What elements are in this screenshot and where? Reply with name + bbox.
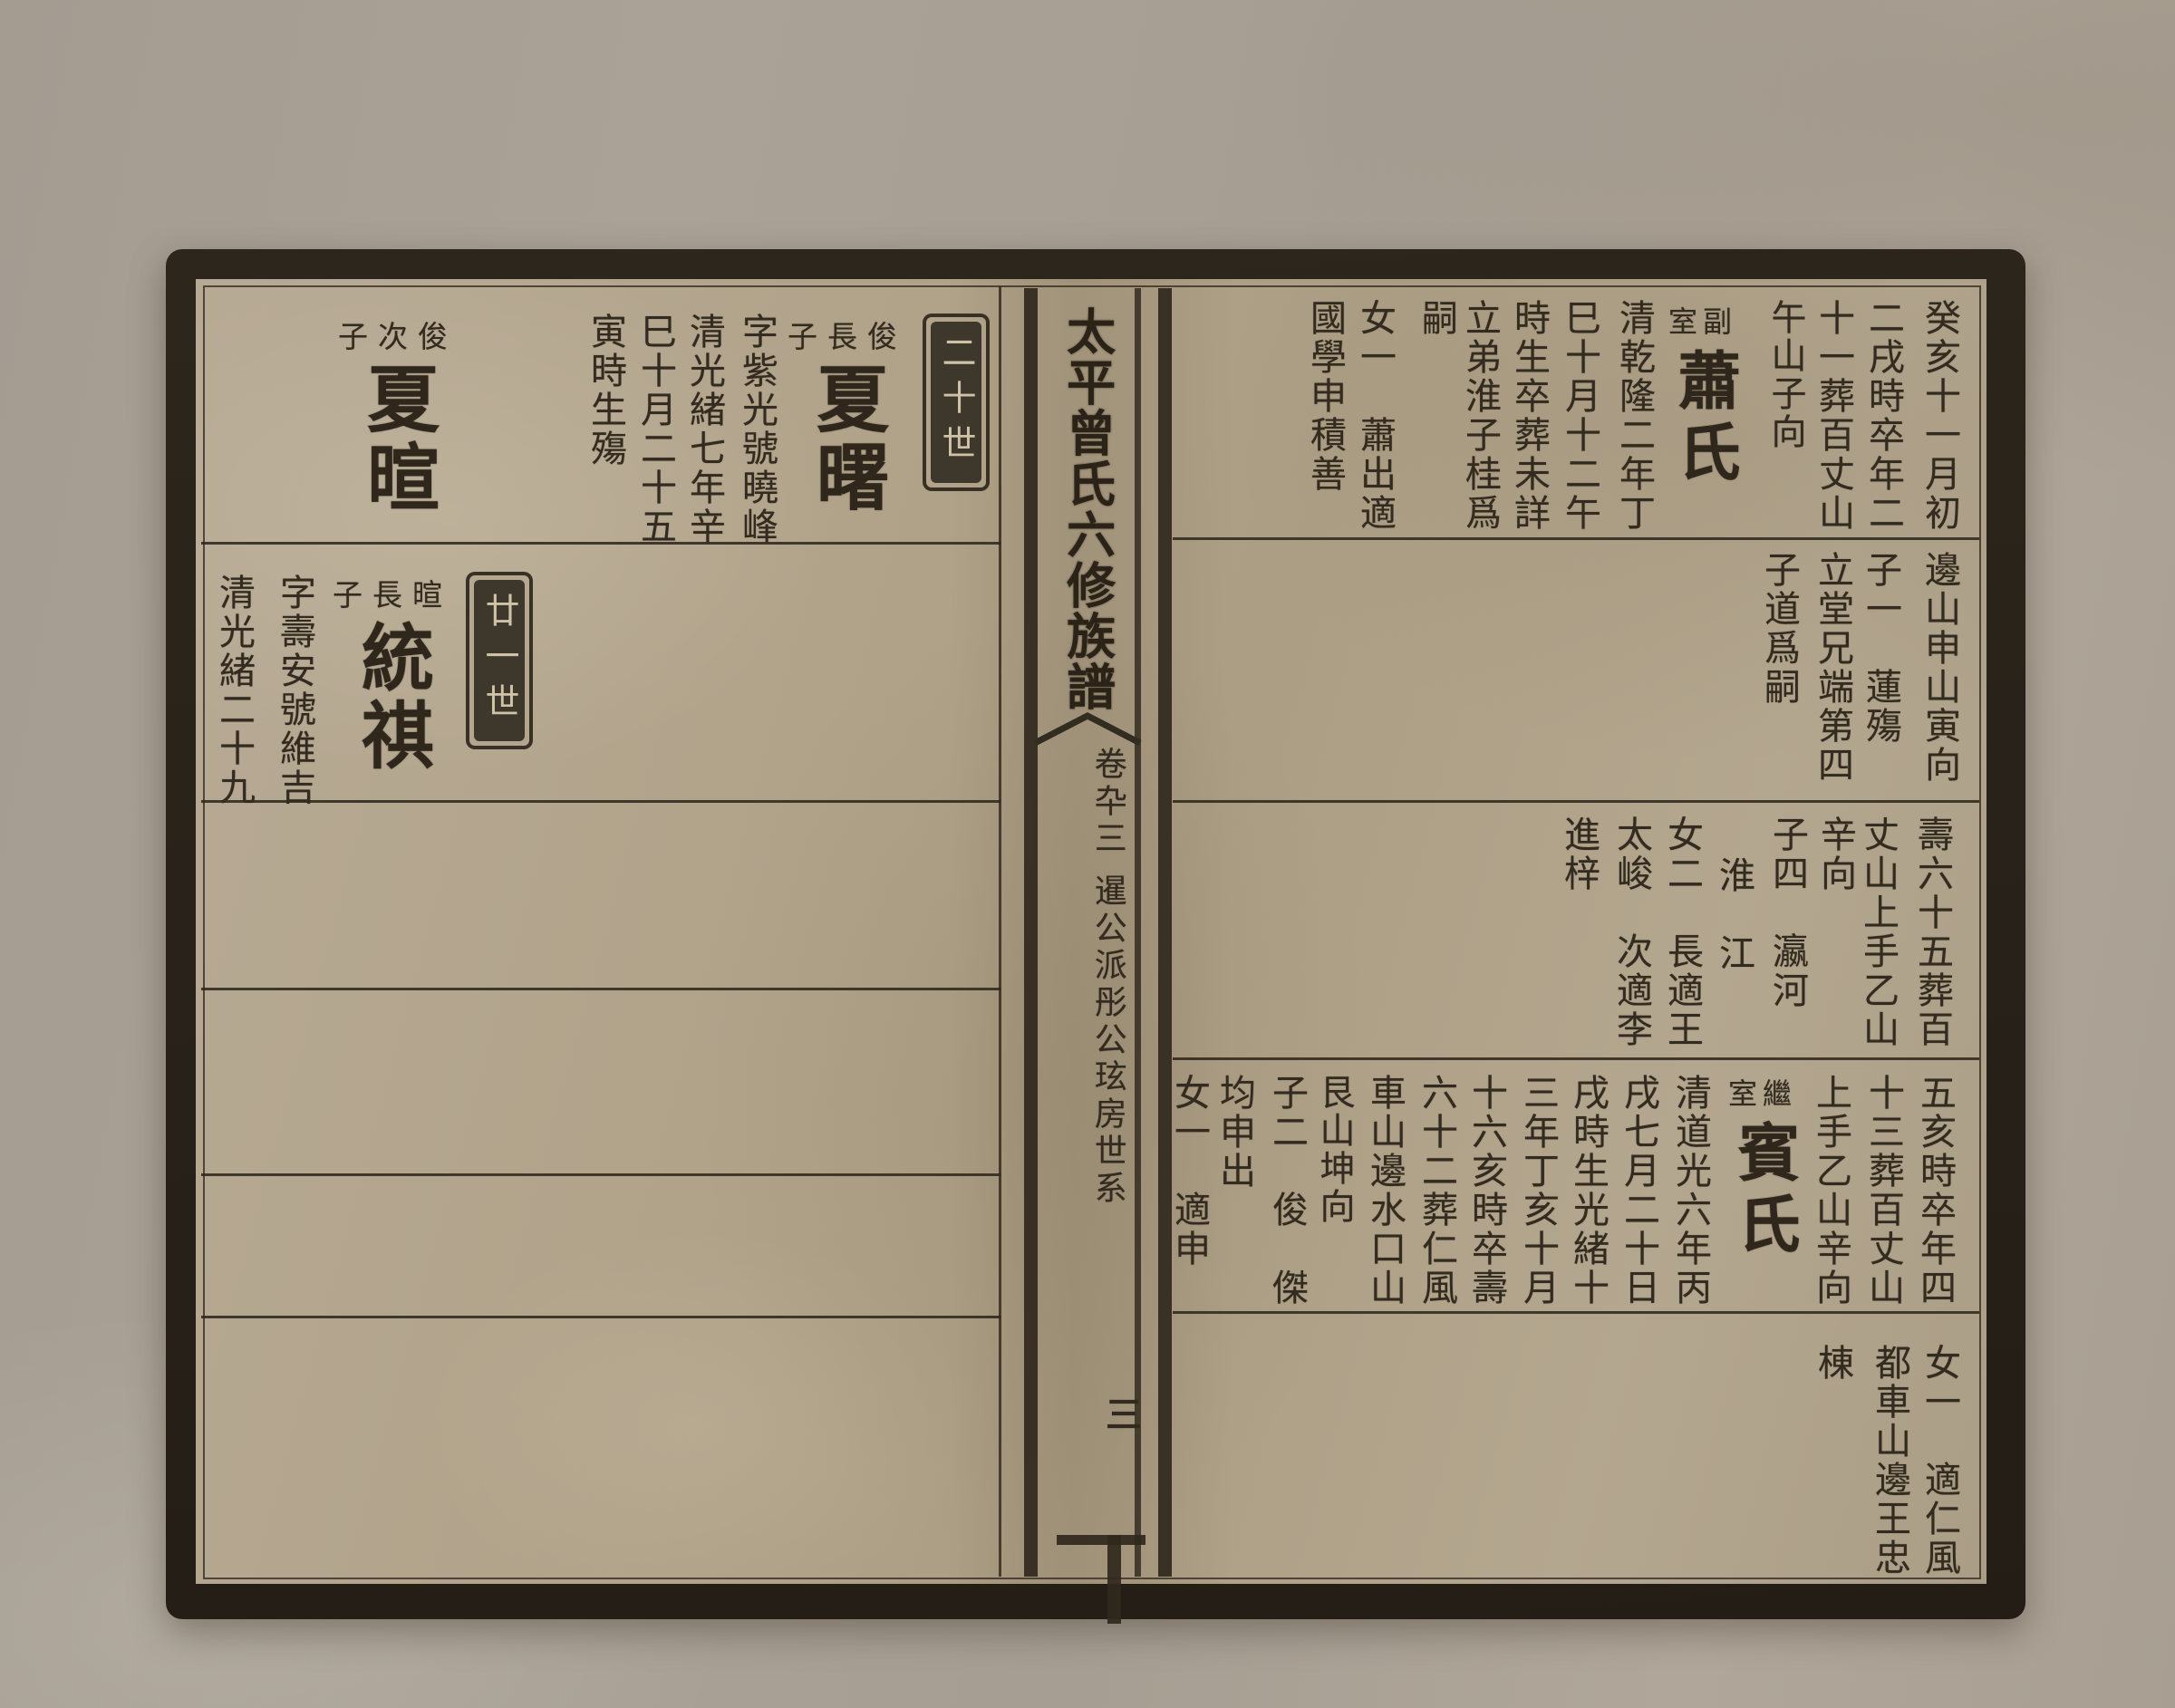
right-row-divider-4 — [1173, 1311, 1979, 1314]
left-r2-col-guangxu29: 清光緒二十九 — [215, 574, 253, 807]
right-r1-col-heir-setup: 立弟淮子桂爲 — [1461, 299, 1499, 533]
right-r4-col-death: 五亥時卒年四 — [1916, 1074, 1954, 1308]
right-r3-col-age: 壽六十五葬百 — [1913, 815, 1951, 1049]
left-r1-col-date: 巳十月二十五 — [636, 313, 674, 546]
right-page-left-bar — [1158, 288, 1172, 1577]
right-r1-col-orientation: 午山子向 — [1766, 299, 1803, 451]
fold-mark-vertical — [1107, 1535, 1121, 1624]
right-r1-col-deathage: 二戌時卒年二 — [1864, 299, 1902, 533]
person-relation: 俊次子 — [338, 313, 458, 356]
right-r2-col-adopt2: 子道爲嗣 — [1760, 551, 1798, 707]
spine-left-bar — [1024, 288, 1038, 1577]
right-r4-col-guangxu: 戌時生光緒十 — [1569, 1074, 1607, 1308]
left-r2-col-courtesyname: 字壽安號維吉 — [275, 574, 314, 807]
page-number: 三 — [1094, 1395, 1146, 1432]
right-r3-col-daughters: 女二 長適王 — [1663, 815, 1701, 1049]
scanned-genealogy-spread: 太平曾氏六修族譜 卷卆三 暹公派彤公玹房世系 三 癸亥十一月初 二戌時卒年二 十… — [0, 0, 2175, 1708]
right-r1-col-unknown-burial: 時生卒葬未詳 — [1510, 299, 1548, 533]
person-entry-xiaxuan: 俊次子 夏暄 — [343, 313, 453, 517]
spouse-entry-bin: 繼室 賓氏 — [1727, 1071, 1798, 1263]
left-row-divider-3 — [201, 988, 1000, 990]
right-r2-col-son: 子一 蓮殤 — [1861, 551, 1899, 746]
generation-box-20-label: 二十世 — [931, 322, 981, 483]
right-r4-col-gravesite: 車山邊水口山 — [1366, 1074, 1404, 1308]
right-r3-col-daughters2: 太峻 次適李 — [1612, 815, 1650, 1049]
right-r3-col-son-jinzi: 進梓 — [1560, 815, 1598, 893]
right-r1-col-date: 巳十月十二午 — [1561, 299, 1599, 533]
person-relation: 暄長子 — [333, 571, 452, 614]
spouse-label: 繼室 — [1728, 1071, 1797, 1113]
person-name: 統祺 — [354, 620, 430, 776]
person-relation: 俊長子 — [788, 313, 907, 356]
right-row-divider-3 — [1173, 1057, 1979, 1060]
spine-right-rule — [1135, 288, 1141, 1577]
left-row-divider-5 — [201, 1316, 1000, 1318]
person-name: 夏曙 — [809, 362, 885, 517]
branch-lineage-label: 暹公派彤公玹房世系 — [1090, 873, 1125, 1208]
right-r4-col-age62: 六十二葬仁風 — [1417, 1074, 1455, 1308]
person-name: 夏暄 — [360, 362, 436, 517]
left-row-divider-4 — [201, 1173, 1000, 1176]
left-r1-col-guangxu7: 清光緒七年辛 — [685, 313, 723, 546]
person-entry-xiashu: 俊長子 夏曙 — [788, 313, 906, 517]
right-r1-col-birthdate: 癸亥十一月初 — [1920, 299, 1958, 533]
left-r1-col-courtesyname: 字紫光號曉峰 — [738, 313, 776, 546]
right-r1-col-qianlong: 清乾隆二年丁 — [1615, 299, 1653, 533]
right-r4-col-deathdate: 三年丁亥十月 — [1519, 1074, 1557, 1308]
right-r3-col-sons: 子四 瀛河 — [1768, 815, 1806, 1010]
right-row-divider-2 — [1173, 800, 1979, 803]
right-r1-col-heir: 嗣 — [1417, 299, 1455, 338]
right-r3-col-orientation: 辛向 — [1816, 815, 1854, 893]
generation-box-21: 廿一世 — [466, 572, 533, 749]
left-page-right-rule — [999, 286, 1001, 1577]
spouse-label: 副室 — [1668, 299, 1737, 341]
right-r4-col-twosons: 子二 俊 傑 — [1268, 1074, 1306, 1308]
right-r2-col-grave: 邊山申山寅向 — [1920, 551, 1958, 785]
generation-box-20: 二十世 — [923, 314, 990, 491]
right-r2-col-adopt: 立堂兄端第四 — [1813, 551, 1851, 785]
spouse-entry-xiao: 副室 蕭氏 — [1667, 299, 1738, 491]
right-r4-col-birthdate: 戌七月二十日 — [1619, 1074, 1658, 1308]
right-r5-col-marriage: 都車山邊王忠 — [1870, 1344, 1909, 1578]
right-r4-col-daughter: 女一 適申 — [1170, 1074, 1208, 1269]
right-r1-col-daughter: 女一 蕭出適 — [1356, 299, 1394, 533]
book-title: 太平曾氏六修族譜 — [1061, 306, 1112, 712]
generation-box-21-label: 廿一世 — [474, 580, 525, 741]
spouse-name: 賓氏 — [1730, 1120, 1795, 1263]
volume-label: 卷卆三 — [1090, 747, 1125, 858]
right-r4-col-orientation: 上手乙山辛向 — [1812, 1074, 1850, 1308]
right-r3-col-sons2: 淮 江 — [1715, 856, 1753, 973]
right-r4-col-burial: 十三葬百丈山 — [1864, 1074, 1902, 1308]
left-row-divider-1 — [201, 542, 1000, 545]
right-r5-col-marriage2: 棟 — [1813, 1344, 1851, 1383]
right-r5-col-daughter: 女一 適仁風 — [1920, 1344, 1958, 1578]
spouse-name: 蕭氏 — [1670, 348, 1735, 491]
right-r4-col-orientation2: 艮山坤向 — [1315, 1074, 1352, 1226]
right-r4-col-bothborn: 均申出 — [1215, 1074, 1253, 1191]
right-r4-col-deathtime: 十六亥時卒壽 — [1467, 1074, 1505, 1308]
right-r4-col-daoguang: 清道光六年丙 — [1671, 1074, 1709, 1308]
left-r1-col-diedyoung: 寅時生殤 — [586, 313, 624, 468]
right-r1-col-burial: 十一葬百丈山 — [1814, 299, 1852, 533]
person-entry-tongqi: 暄長子 統祺 — [337, 571, 448, 776]
fishtail-chevron-mark — [1033, 712, 1142, 747]
right-r1-col-soninlaw: 國學申積善 — [1306, 299, 1344, 494]
right-row-divider-1 — [1173, 537, 1979, 540]
left-row-divider-2 — [201, 800, 1000, 803]
right-r3-col-grave: 丈山上手乙山 — [1859, 815, 1897, 1049]
fold-mark-horizontal — [1057, 1535, 1145, 1545]
